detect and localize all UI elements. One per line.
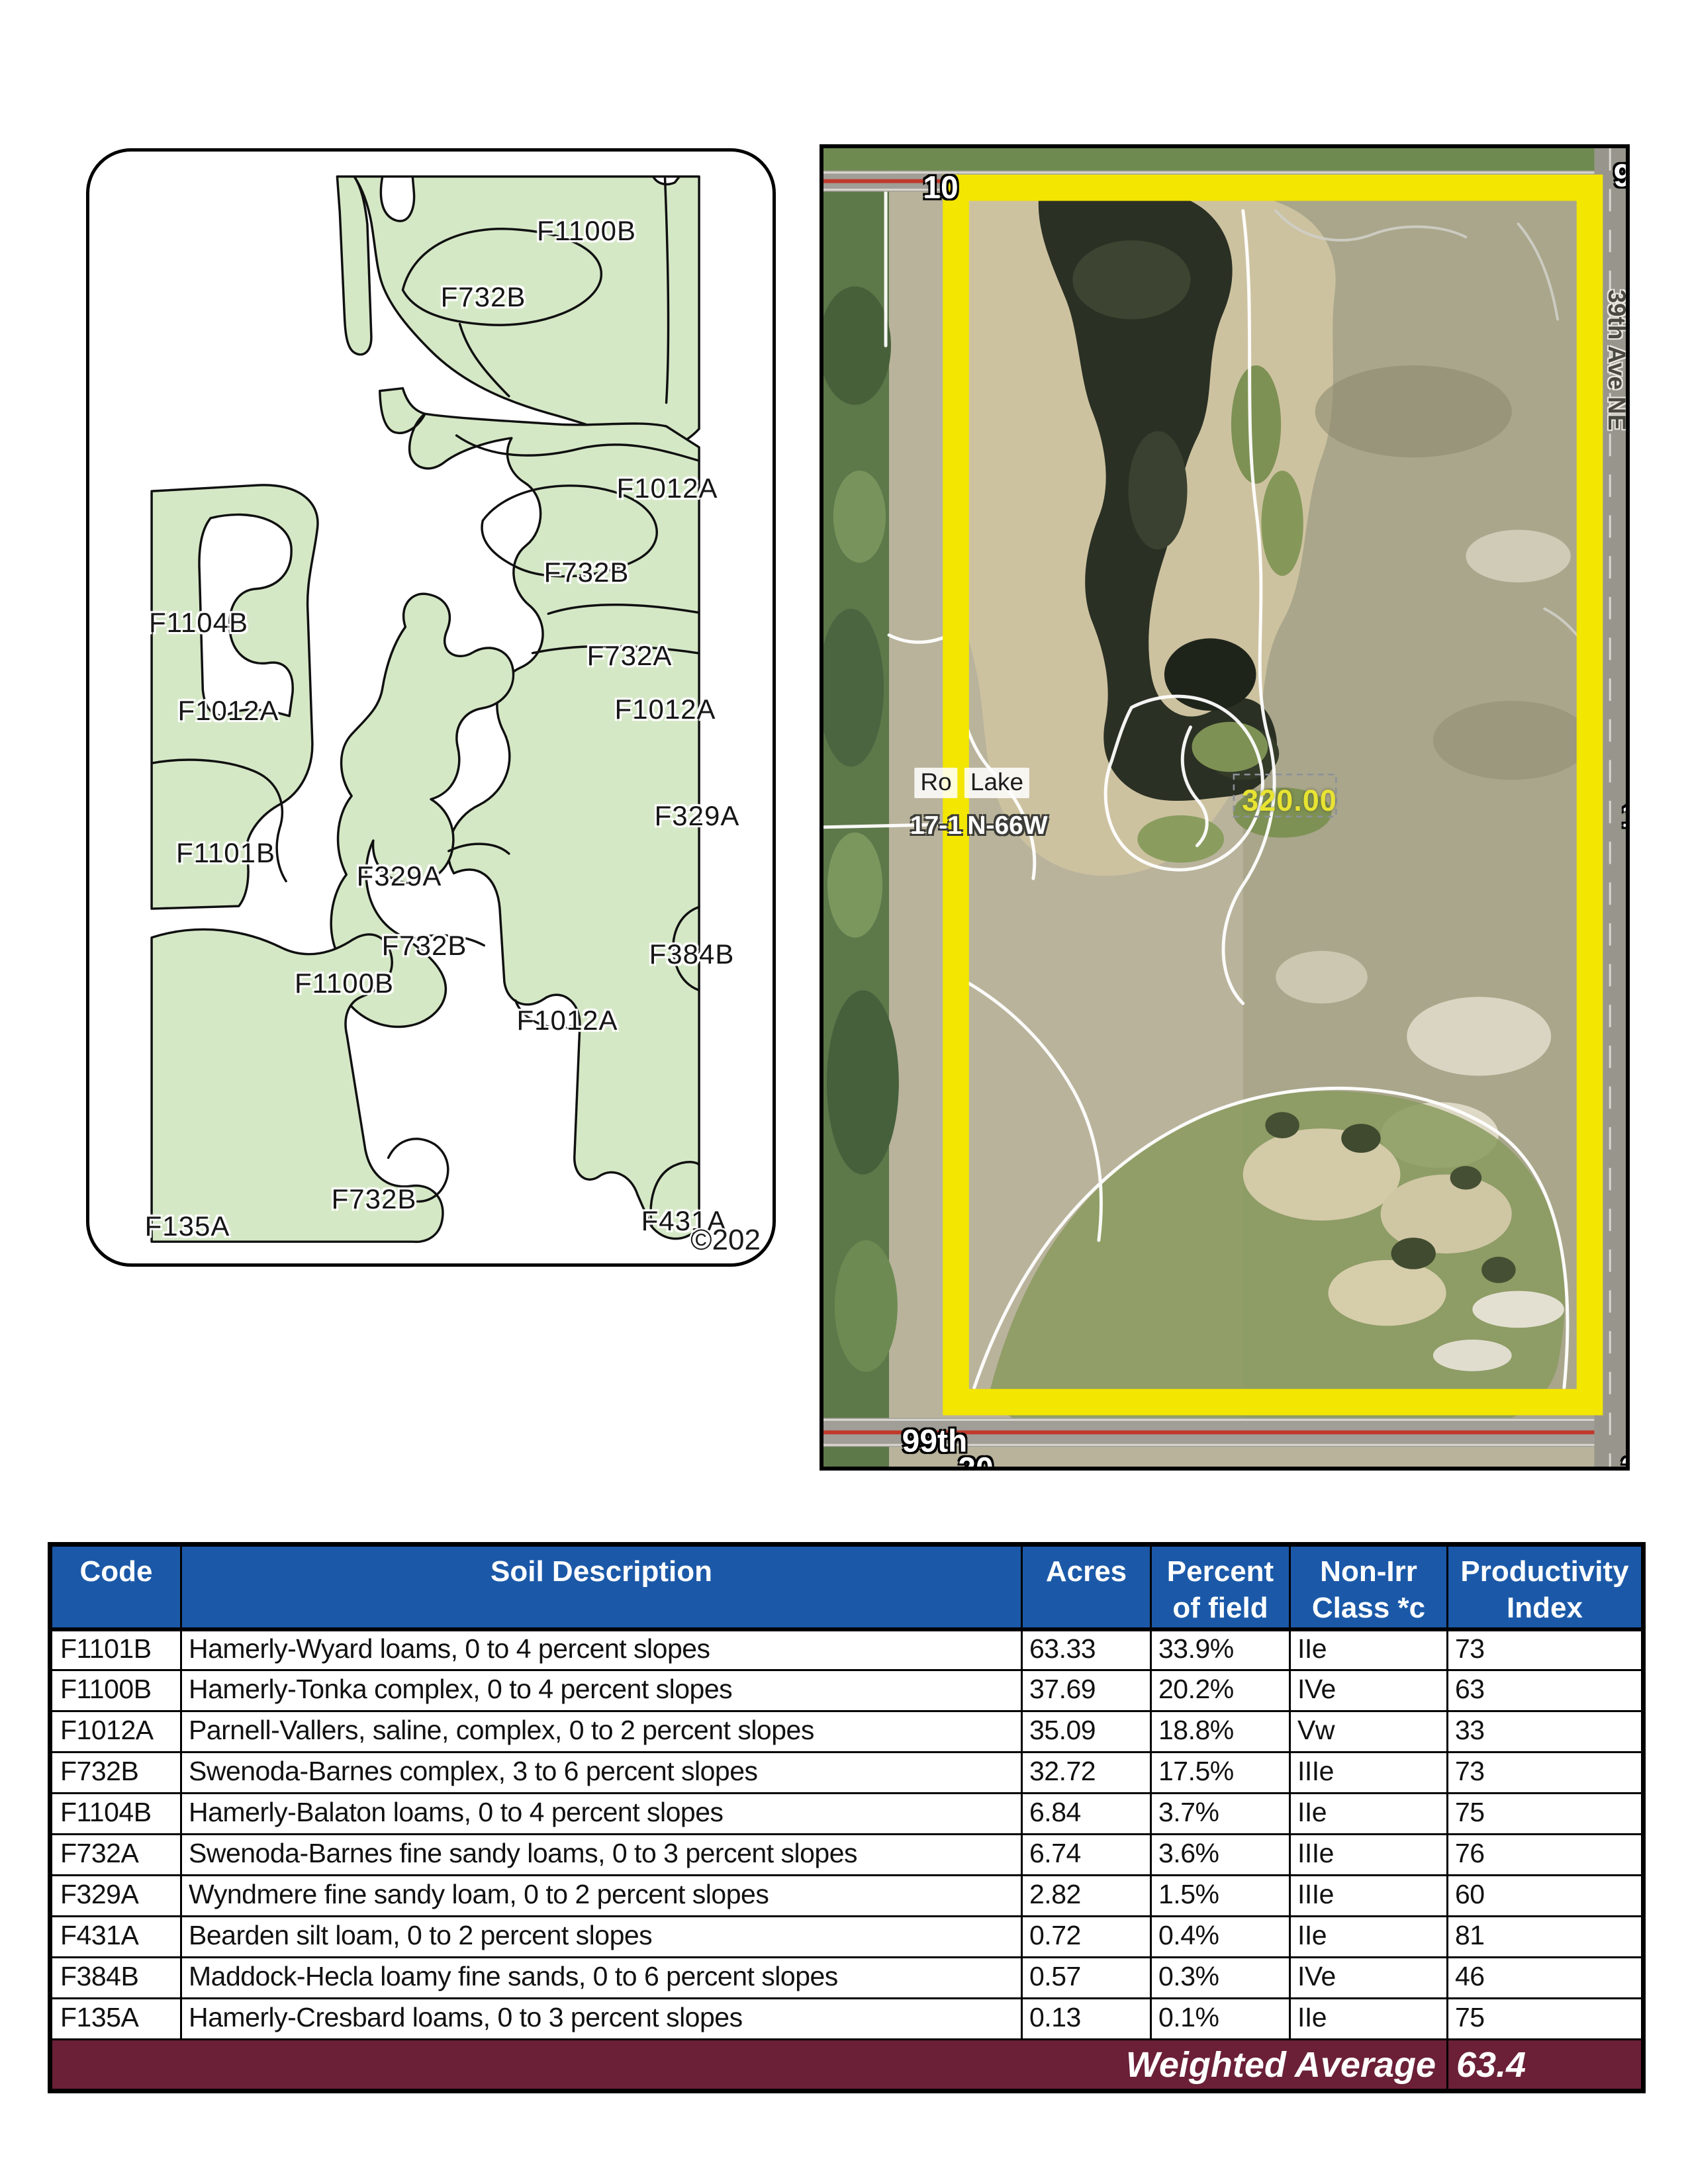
cell-percent: 1.5%	[1151, 1876, 1290, 1917]
header-non-irr-class: Non-Irr Class *c	[1290, 1545, 1448, 1629]
cell-percent: 3.7%	[1151, 1794, 1290, 1835]
cell-percent: 0.3%	[1151, 1958, 1290, 1999]
table-row: F1100BHamerly-Tonka complex, 0 to 4 perc…	[50, 1670, 1644, 1711]
soil-code-label: F732A	[587, 640, 673, 672]
cell-acres: 0.57	[1022, 1958, 1151, 1999]
cell-description: Hamerly-Cresbard loams, 0 to 3 percent s…	[181, 1999, 1022, 2040]
cell-code: F1012A	[50, 1711, 181, 1752]
cell-description: Wyndmere fine sandy loam, 0 to 2 percent…	[181, 1876, 1022, 1917]
cell-code: F732A	[50, 1835, 181, 1876]
aerial-photo-graphic	[823, 148, 1626, 1467]
cell-description: Swenoda-Barnes fine sandy loams, 0 to 3 …	[181, 1835, 1022, 1876]
soil-code-label: F1012A	[516, 1005, 618, 1036]
cell-productivity_index: 73	[1448, 1629, 1644, 1670]
soils-table-header: Code Soil Description Acres Percent of f…	[50, 1545, 1644, 1629]
cell-description: Bearden silt loam, 0 to 2 percent slopes	[181, 1917, 1022, 1958]
header-productivity-index: Productivity Index	[1448, 1545, 1644, 1629]
cell-code: F431A	[50, 1917, 181, 1958]
aerial-label-township: 17-1	[910, 811, 962, 841]
soil-code-label: F1104B	[149, 607, 248, 639]
cell-productivity_index: 46	[1448, 1958, 1644, 1999]
cell-acres: 32.72	[1022, 1752, 1151, 1794]
cell-description: Parnell-Vallers, saline, complex, 0 to 2…	[181, 1711, 1022, 1752]
cell-non_irr_class: IIe	[1290, 1999, 1448, 2040]
cell-acres: 6.74	[1022, 1835, 1151, 1876]
cell-productivity_index: 73	[1448, 1752, 1644, 1794]
weighted-average-value: 63.4	[1448, 2040, 1644, 2091]
aerial-label-chip: Lake	[964, 768, 1029, 798]
aerial-label-section: 2	[1621, 1451, 1630, 1471]
aerial-label-section: 1	[1622, 799, 1630, 835]
cell-non_irr_class: IIIe	[1290, 1835, 1448, 1876]
cell-description: Hamerly-Balaton loams, 0 to 4 percent sl…	[181, 1794, 1022, 1835]
cell-description: Hamerly-Wyard loams, 0 to 4 percent slop…	[181, 1629, 1022, 1670]
aerial-label-section: 20	[958, 1451, 993, 1471]
cell-productivity_index: 33	[1448, 1711, 1644, 1752]
soil-code-label: F329A	[655, 800, 740, 832]
soil-code-label: F1012A	[614, 694, 716, 725]
header-percent-of-field: Percent of field	[1151, 1545, 1290, 1629]
aerial-label-acreage: 320.00	[1242, 784, 1337, 818]
soil-code-label: F732B	[332, 1183, 417, 1215]
cell-percent: 33.9%	[1151, 1629, 1290, 1670]
soil-code-label: F1101B	[176, 837, 275, 869]
cell-percent: 20.2%	[1151, 1670, 1290, 1711]
cell-acres: 0.13	[1022, 1999, 1151, 2040]
soil-code-label: F1012A	[177, 695, 279, 727]
cell-acres: 35.09	[1022, 1711, 1151, 1752]
cell-non_irr_class: IIIe	[1290, 1752, 1448, 1794]
map-copyright: ©202	[690, 1224, 761, 1257]
cell-non_irr_class: IIe	[1290, 1917, 1448, 1958]
cell-non_irr_class: IVe	[1290, 1958, 1448, 1999]
aerial-label-township: N-66W	[967, 811, 1047, 841]
cell-non_irr_class: IIIe	[1290, 1876, 1448, 1917]
soil-code-label: F329A	[357, 860, 442, 892]
table-row: F384BMaddock-Hecla loamy fine sands, 0 t…	[50, 1958, 1644, 1999]
cell-non_irr_class: IIe	[1290, 1794, 1448, 1835]
soils-table: Code Soil Description Acres Percent of f…	[48, 1542, 1646, 2093]
cell-acres: 37.69	[1022, 1670, 1151, 1711]
cell-description: Maddock-Hecla loamy fine sands, 0 to 6 p…	[181, 1958, 1022, 1999]
soil-code-label: F732B	[441, 281, 526, 313]
cell-description: Hamerly-Tonka complex, 0 to 4 percent sl…	[181, 1670, 1022, 1711]
table-row: F329AWyndmere fine sandy loam, 0 to 2 pe…	[50, 1876, 1644, 1917]
cell-percent: 18.8%	[1151, 1711, 1290, 1752]
table-row: F732BSwenoda-Barnes complex, 3 to 6 perc…	[50, 1752, 1644, 1794]
cell-acres: 6.84	[1022, 1794, 1151, 1835]
cell-code: F329A	[50, 1876, 181, 1917]
table-row: F1012AParnell-Vallers, saline, complex, …	[50, 1711, 1644, 1752]
cell-code: F135A	[50, 1999, 181, 2040]
cell-percent: 17.5%	[1151, 1752, 1290, 1794]
aerial-label-section: 10	[923, 170, 958, 206]
table-row: F431ABearden silt loam, 0 to 2 percent s…	[50, 1917, 1644, 1958]
cell-non_irr_class: Vw	[1290, 1711, 1448, 1752]
table-row: F1104BHamerly-Balaton loams, 0 to 4 perc…	[50, 1794, 1644, 1835]
soil-report-page: F1100BF732BF1012AF732BF1104BF732AF1012AF…	[0, 0, 1688, 2184]
weighted-average-label: Weighted Average	[50, 2040, 1448, 2091]
table-row: F1101BHamerly-Wyard loams, 0 to 4 percen…	[50, 1629, 1644, 1670]
aerial-label-road-vertical: 39th Ave NE	[1603, 289, 1630, 430]
table-row: F135AHamerly-Cresbard loams, 0 to 3 perc…	[50, 1999, 1644, 2040]
soils-table-body: F1101BHamerly-Wyard loams, 0 to 4 percen…	[50, 1629, 1644, 2040]
soil-code-label: F732B	[382, 930, 467, 962]
cell-productivity_index: 63	[1448, 1670, 1644, 1711]
cell-non_irr_class: IIe	[1290, 1629, 1448, 1670]
header-soil-description: Soil Description	[181, 1545, 1022, 1629]
cell-percent: 0.4%	[1151, 1917, 1290, 1958]
aerial-label-section: 9	[1614, 158, 1630, 195]
cell-productivity_index: 75	[1448, 1794, 1644, 1835]
cell-productivity_index: 76	[1448, 1835, 1644, 1876]
soil-code-label: F384B	[649, 938, 735, 970]
cell-code: F1101B	[50, 1629, 181, 1670]
header-acres: Acres	[1022, 1545, 1151, 1629]
cell-acres: 63.33	[1022, 1629, 1151, 1670]
header-code: Code	[50, 1545, 181, 1629]
aerial-photo-panel: 109RoLake17-1N-66W320.00139th Ave NE99th…	[820, 144, 1630, 1471]
cell-percent: 0.1%	[1151, 1999, 1290, 2040]
cell-code: F1104B	[50, 1794, 181, 1835]
soil-map-panel: F1100BF732BF1012AF732BF1104BF732AF1012AF…	[86, 148, 776, 1267]
cell-acres: 0.72	[1022, 1917, 1151, 1958]
soil-code-label: F732B	[544, 557, 630, 588]
cell-non_irr_class: IVe	[1290, 1670, 1448, 1711]
cell-productivity_index: 60	[1448, 1876, 1644, 1917]
table-row: F732ASwenoda-Barnes fine sandy loams, 0 …	[50, 1835, 1644, 1876]
soil-code-label: F1100B	[537, 215, 636, 247]
cell-percent: 3.6%	[1151, 1835, 1290, 1876]
aerial-label-chip: Ro	[914, 768, 957, 798]
cell-productivity_index: 75	[1448, 1999, 1644, 2040]
cell-code: F1100B	[50, 1670, 181, 1711]
soil-code-label: F135A	[145, 1210, 230, 1242]
cell-code: F384B	[50, 1958, 181, 1999]
cell-code: F732B	[50, 1752, 181, 1794]
soils-table-footer: Weighted Average 63.4	[50, 2040, 1644, 2091]
cell-productivity_index: 81	[1448, 1917, 1644, 1958]
cell-description: Swenoda-Barnes complex, 3 to 6 percent s…	[181, 1752, 1022, 1794]
soil-code-label: F1012A	[616, 473, 718, 504]
cell-acres: 2.82	[1022, 1876, 1151, 1917]
soil-code-label: F1100B	[295, 968, 394, 999]
